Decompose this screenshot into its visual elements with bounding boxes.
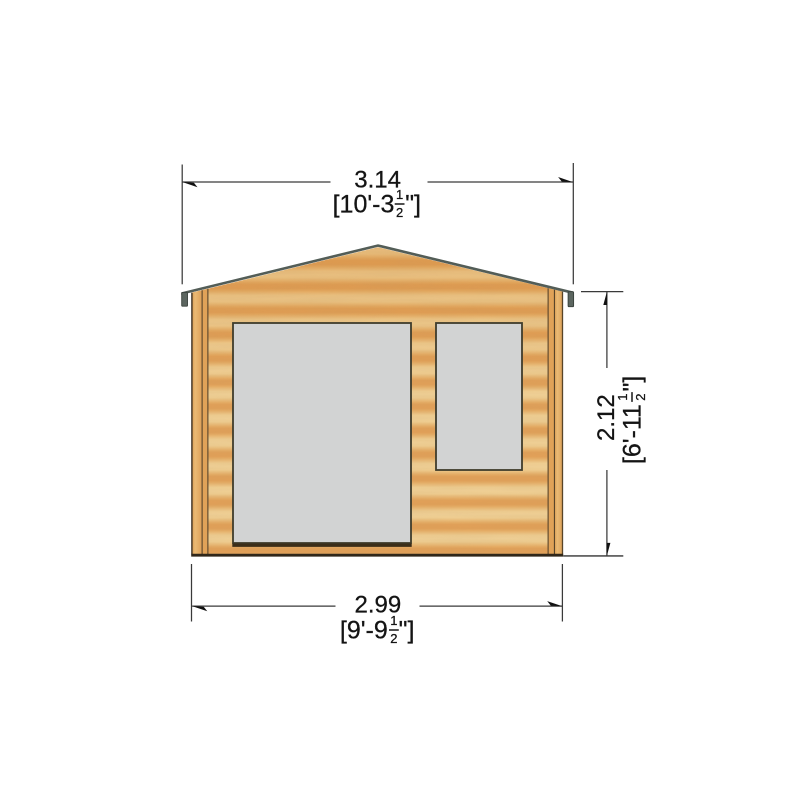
svg-text:[6'-11: [6'-11 (618, 404, 646, 464)
svg-text:[10'-3: [10'-3 (333, 190, 395, 218)
svg-text:2: 2 (396, 205, 403, 220)
svg-text:"]: "] (399, 616, 415, 644)
svg-text:"]: "] (405, 190, 421, 218)
svg-text:1: 1 (396, 187, 403, 202)
svg-text:3.14: 3.14 (354, 166, 401, 193)
svg-text:2: 2 (633, 393, 648, 400)
svg-text:"]: "] (618, 376, 646, 392)
svg-text:[9'-9: [9'-9 (340, 616, 388, 644)
svg-text:1: 1 (390, 613, 397, 628)
svg-text:2: 2 (390, 631, 397, 646)
svg-text:1: 1 (615, 393, 630, 400)
